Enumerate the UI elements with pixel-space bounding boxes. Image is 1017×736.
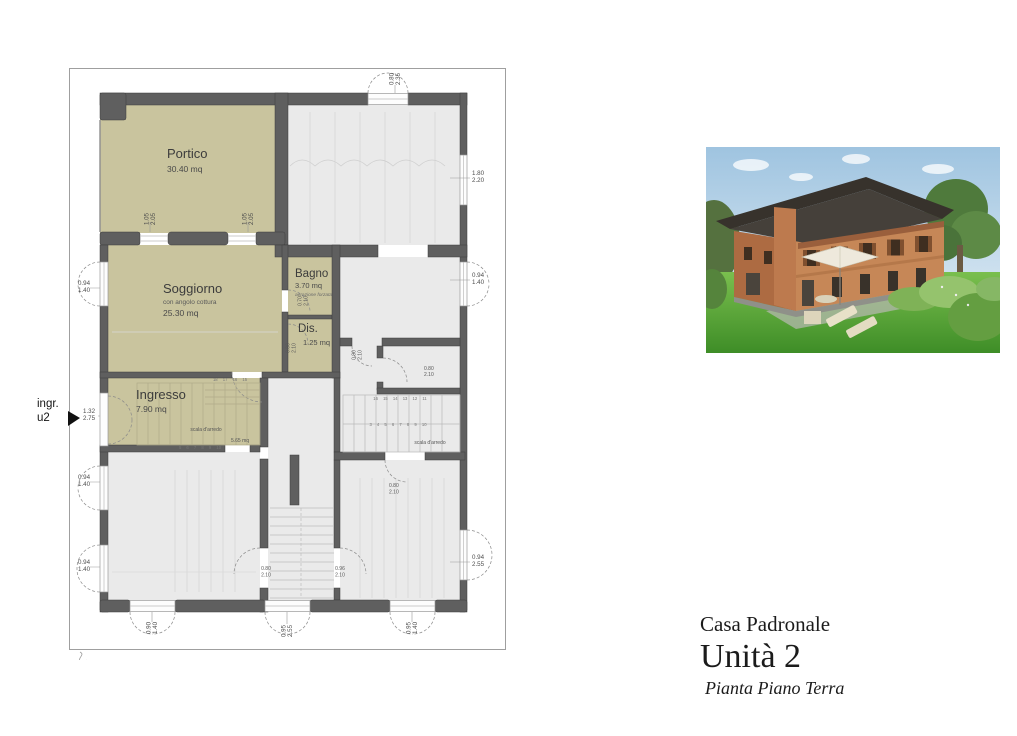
ingresso-area: 7.90 mq — [136, 404, 167, 414]
floor-plan: Portico 30.40 mq Soggiorno con angolo co… — [30, 60, 520, 660]
dim-right-top: 1.80 — [472, 170, 485, 177]
soggiorno-area: 25.30 mq — [163, 308, 199, 318]
plan-subtitle: Pianta Piano Terra — [705, 678, 1010, 699]
room-lower-left — [108, 452, 260, 600]
dis-name: Dis. — [298, 323, 318, 335]
dim-right-low: 0.94 — [472, 554, 485, 561]
dim-right-low2: 2.55 — [472, 561, 485, 568]
stair-left-bottom-steps: 5 6 7 8 9 10 — [179, 445, 222, 450]
unit-title: Unità 2 — [700, 638, 1010, 676]
dis-area: 1.25 mq — [303, 338, 330, 347]
entrance-label-line1: ingr. — [37, 398, 59, 410]
svg-text:2.55: 2.55 — [287, 624, 294, 637]
svg-text:2.10: 2.10 — [292, 343, 298, 353]
dim-left-low2: 1.40 — [78, 566, 91, 573]
dim-door-low-right: 0.96 — [335, 566, 345, 572]
dim-door-right: 0.80 — [389, 483, 399, 489]
room-terrace-neighbor — [288, 105, 460, 245]
stair-right-mid-steps: 3 4 5 6 7 8 9 10 — [369, 422, 427, 427]
dim-right-mid2: 1.40 — [472, 279, 485, 286]
bagno-name: Bagno — [295, 268, 328, 280]
dim-entrance: 1.32 — [83, 408, 96, 415]
svg-text:2.05: 2.05 — [150, 212, 157, 225]
dim-right-mid: 0.94 — [472, 272, 485, 279]
house-rendering-photo — [706, 147, 1000, 353]
project-title: Casa Padronale — [700, 612, 1010, 637]
dim-bottom-left: 0.90 1.40 — [146, 621, 160, 634]
stair-right-top-steps: 16 15 14 13 12 11 — [373, 396, 427, 401]
entrance-label-line2: u2 — [37, 412, 50, 424]
svg-text:1.40: 1.40 — [152, 621, 159, 634]
dim-left-mid2: 1.40 — [78, 481, 91, 488]
stair-left-area: 5.65 mq — [231, 438, 249, 444]
cube-seat — [804, 311, 821, 324]
portico-area: 30.40 mq — [167, 164, 203, 174]
dim-entrance2: 2.75 — [83, 415, 96, 422]
dim-door-low-right2: 2.10 — [335, 573, 345, 579]
stair-right-label: scala d'arredo — [414, 440, 445, 446]
stair-left-top-steps: 18 17 16 15 — [213, 377, 248, 382]
corner-pillar — [774, 207, 796, 311]
dim-door-low-left: 0.80 — [261, 566, 271, 572]
dim-left-sogg2: 1.40 — [78, 287, 91, 294]
dim-door-right2: 2.10 — [389, 490, 399, 496]
svg-text:1.40: 1.40 — [412, 621, 419, 634]
page: { "title_block": { "project": "Casa Padr… — [0, 0, 1017, 736]
svg-text:2.35: 2.35 — [395, 72, 402, 85]
dim-door-low-left2: 2.10 — [261, 573, 271, 579]
soggiorno-name: Soggiorno — [163, 281, 222, 296]
dim-left-low: 0.94 — [78, 559, 91, 566]
dim-door-dis: 0.80 2.10 — [286, 343, 298, 353]
dim-portico-col-right: 1.05 2.05 — [242, 212, 256, 225]
dim-bottom-right: 0.95 1.40 — [406, 621, 420, 634]
svg-text:2.05: 2.05 — [248, 212, 255, 225]
bagno-area: 3.70 mq — [295, 281, 322, 290]
ingresso-name: Ingresso — [136, 387, 186, 402]
dim-right-top2: 2.20 — [472, 177, 485, 184]
dim-left-sogg: 0.94 — [78, 280, 91, 287]
portico-name: Portico — [167, 146, 207, 161]
title-block: Casa Padronale Unità 2 Pianta Piano Terr… — [700, 612, 1010, 699]
svg-text:2.10: 2.10 — [358, 350, 364, 360]
dim-bottom-center: 0.95 2.55 — [281, 624, 295, 637]
stair-left-label: scala d'arredo — [190, 427, 221, 433]
dim-left-mid: 0.94 — [78, 474, 91, 481]
dim-portico-col-left: 1.05 2.05 — [144, 212, 158, 225]
room-central-corridor — [268, 378, 334, 600]
dim-top-door: 0.80 2.35 — [389, 72, 403, 85]
svg-text:2.10: 2.10 — [304, 296, 310, 306]
dim-door-bagno: 0.70 2.10 — [298, 296, 310, 306]
pen-mark — [80, 652, 87, 660]
soggiorno-note: con angolo cottura — [163, 299, 217, 306]
dim-door-mid1: 0.80 2.10 — [352, 350, 364, 360]
dim-door-mid2b: 2.10 — [424, 372, 434, 378]
